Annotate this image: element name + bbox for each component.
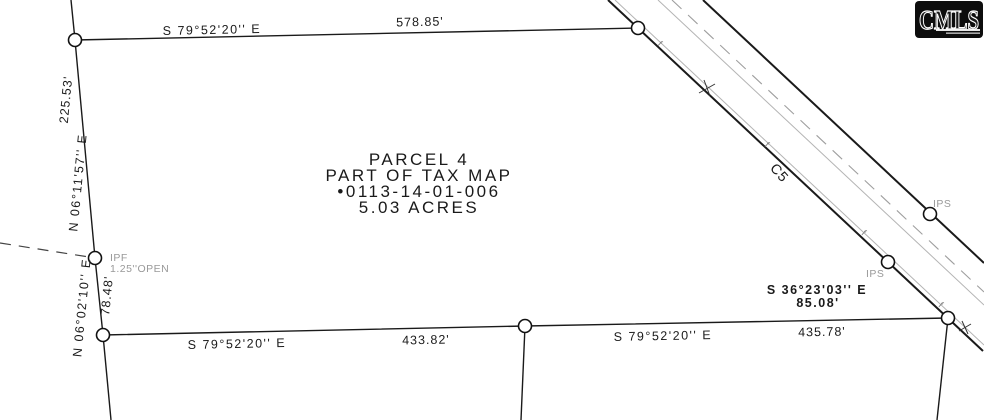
cmls-logo-tagline-strip [946, 33, 980, 34]
distance-west-lower: 78.48' [98, 275, 116, 316]
distance-top: 578.85' [396, 15, 444, 30]
survey-marker-south-mid [519, 320, 532, 333]
survey-marker-sw [97, 329, 110, 342]
cmls-logo: CMLS [915, 1, 983, 38]
parcel-boundary-lines [71, 0, 948, 420]
bearing-road-frontage: S 36°23'03'' E [767, 283, 867, 297]
road-centerline-dashed [672, 0, 984, 292]
fence-mark-glyph: f [656, 39, 665, 48]
survey-marker-se [942, 312, 955, 325]
distance-west-upper: 225.53' [57, 75, 76, 124]
road-curve-label: C5 [767, 160, 792, 185]
boundary-top [75, 28, 638, 40]
survey-marker-ips-boundary [882, 256, 895, 269]
parcel-title-block: PARCEL 4 PART OF TAX MAP •0113-14-01-006… [325, 150, 512, 217]
bearing-south-west: S 79°52'20'' E [188, 336, 287, 352]
road-edge-thin-inner-right [658, 0, 984, 305]
cmls-logo-tagline-strip [936, 29, 980, 31]
ipf-note: 1.25''OPEN [110, 263, 169, 275]
parcel-acreage: 5.03 ACRES [359, 198, 479, 217]
survey-marker-nw [69, 34, 82, 47]
ips-label-road: IPS [933, 198, 951, 210]
marker-labels: IPF 1.25''OPEN IPS IPS [110, 198, 951, 280]
plat-map-page: f f f f S 79°52'20'' E 578.85' N 06°11'5… [0, 0, 984, 420]
ips-label-boundary: IPS [866, 268, 884, 280]
survey-marker-ne [632, 22, 645, 35]
bearing-west-upper: N 06°11'57'' E [66, 133, 89, 232]
boundary-south-drop-east [937, 318, 948, 420]
road-edge-far [703, 0, 984, 263]
boundary-south-drop-mid [521, 326, 525, 420]
distance-road-frontage: 85.08' [796, 296, 839, 310]
bearing-west-lower: N 06°02'10'' E [70, 258, 93, 358]
bearing-top: S 79°52'20'' E [163, 22, 262, 38]
distance-south-west: 433.82' [402, 333, 450, 348]
bearing-south-east: S 79°52'20'' E [614, 328, 713, 344]
distance-south-east: 435.78' [798, 325, 846, 340]
tie-line-dashed [0, 243, 89, 257]
plat-map-svg: f f f f S 79°52'20'' E 578.85' N 06°11'5… [0, 0, 984, 420]
